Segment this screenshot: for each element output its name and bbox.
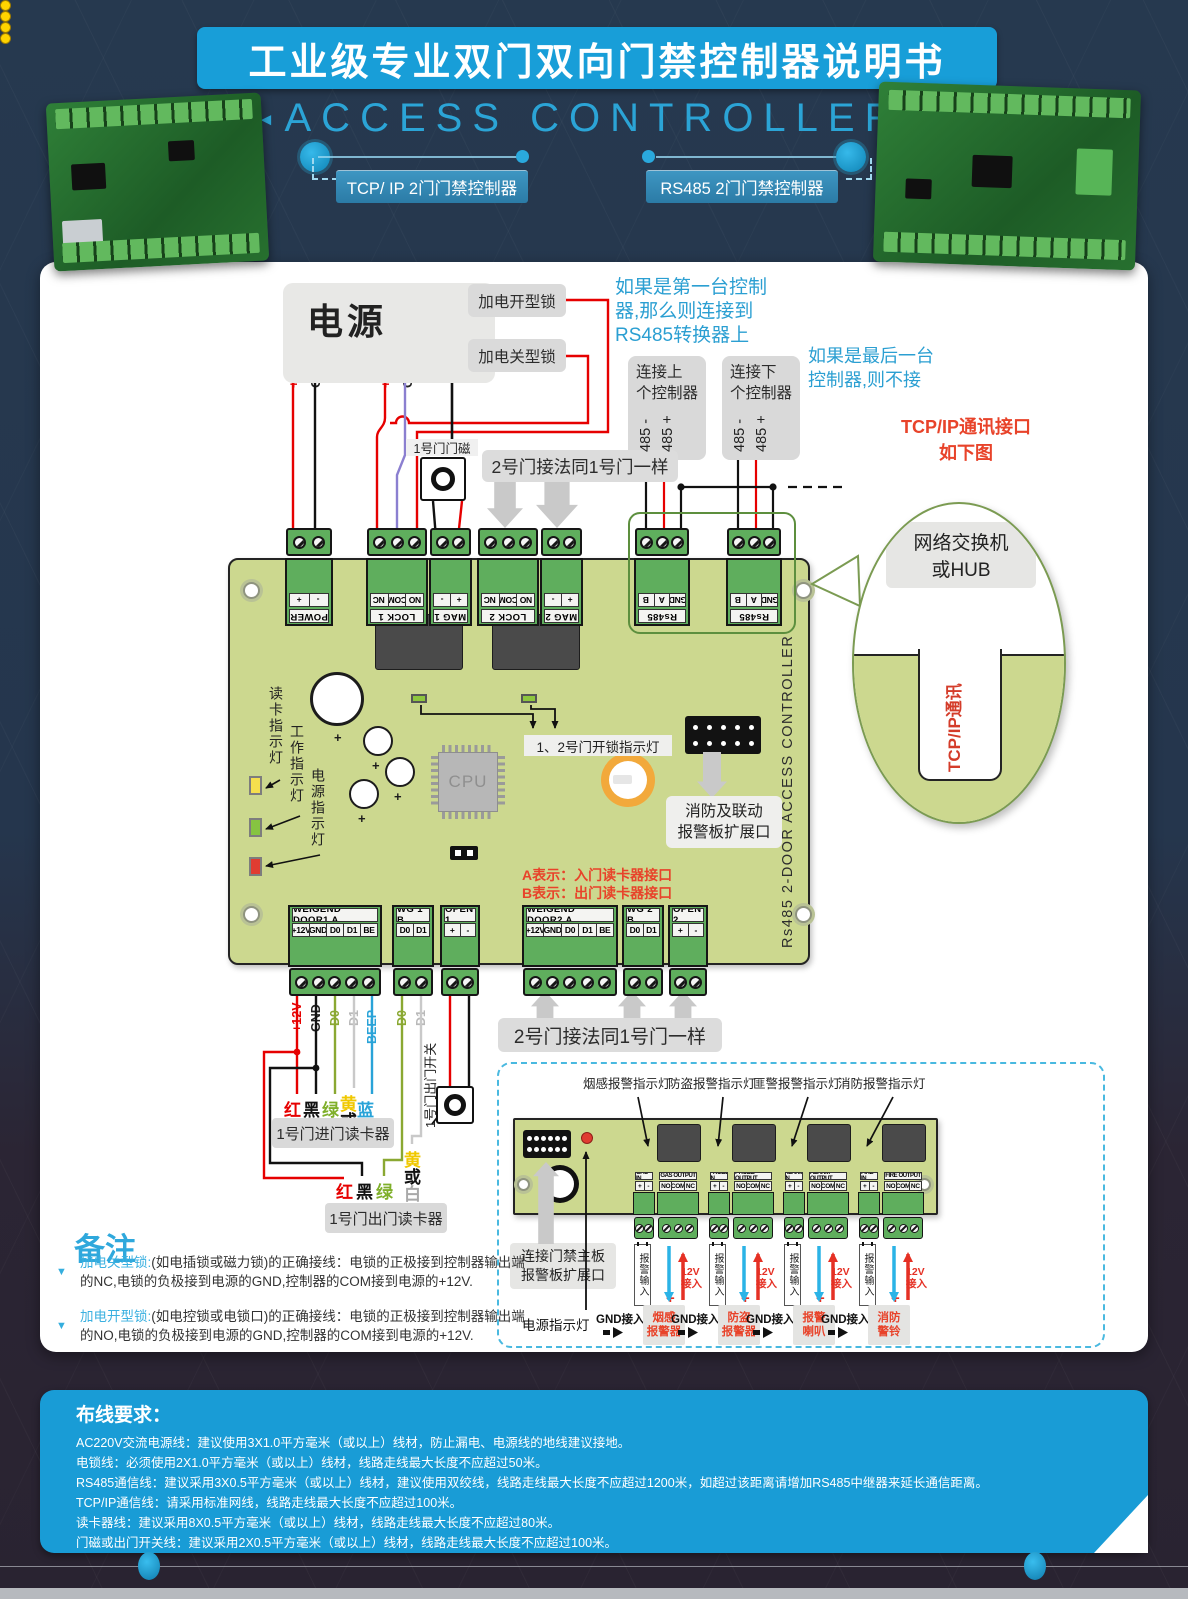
mount-hole-icon	[243, 906, 260, 923]
wire-label-beep: BEEP	[365, 1010, 379, 1044]
screw-icon	[760, 1224, 769, 1233]
wiring-req-title: 布线要求：	[76, 1400, 171, 1427]
screw-icon	[408, 536, 421, 549]
wiring-req-line: RS485通信线：建议采用3X0.5平方毫米（或以上）线材，建议使用双绞线，线路…	[76, 1472, 988, 1491]
link-up-pin-485minus: 485 -	[638, 419, 654, 452]
terminal-bottom-weigend-door2-a: WEIGEND DOOR2 A+12VGNDD0D1BE	[522, 905, 618, 995]
pcb-photo-left	[46, 92, 269, 271]
alarm-input-label: 报警输入	[784, 1244, 801, 1306]
corner-fold	[1094, 1495, 1148, 1553]
terminal-top-power-0: +-POWER	[285, 528, 333, 656]
decor-dash-right	[846, 158, 872, 180]
screw-icon	[794, 1224, 803, 1233]
bullet-triangle-icon: ▼	[56, 1266, 67, 1278]
wiring-req-line: TCP/IP通信线：请采用标准网线，线路走线最大长度不应超过100米。	[76, 1492, 462, 1511]
screw-icon	[461, 976, 474, 989]
unlock-led-2	[521, 694, 537, 703]
door2-same-note-bottom: 2号门接法同1号门一样	[498, 1018, 722, 1052]
alarm-pin-header	[523, 1130, 571, 1158]
led-working	[249, 818, 262, 837]
led-card-read	[249, 776, 262, 795]
alarm-input-label: 报警输入	[634, 1244, 651, 1306]
screw-icon	[685, 1224, 694, 1233]
v12-label: 12V接入	[831, 1266, 852, 1290]
plus-label: +	[666, 1293, 675, 1305]
alarm-terminal-probe-in: PROBE IN+-	[708, 1172, 730, 1242]
exit-button	[436, 1086, 474, 1124]
alarm-terminal-probe-output: PROBE OUTPUTNOCOMNC	[732, 1172, 774, 1242]
capacitor-icon	[349, 779, 379, 809]
footer-dot	[1024, 1552, 1046, 1580]
screw-icon	[656, 536, 669, 549]
alarm-powerled-label: 电源指示灯	[522, 1314, 590, 1334]
note-tcpip: TCP/IP通讯接口 如下图	[868, 414, 1064, 466]
alarm-terminal-alarm-output: ALARM OUTPUTNOCOMNC	[807, 1172, 849, 1242]
wiring-req-line: 读卡器线：建议采用8X0.5平方毫米（或以上）线材，线路走线最大长度不应超过80…	[76, 1512, 560, 1531]
capacitor-icon	[310, 672, 364, 726]
screw-icon	[563, 976, 576, 989]
screw-icon	[546, 976, 559, 989]
wire-label-d0: D0	[328, 1010, 342, 1026]
decor-smalldot-right	[642, 150, 655, 163]
capacitor-icon	[363, 726, 393, 756]
hub-label: 网络交换机或HUB	[886, 522, 1036, 588]
door2-same-note-top: 2号门接法同1号门一样	[482, 450, 678, 482]
screw-icon	[484, 536, 497, 549]
alarm-indicator-led	[0, 11, 11, 22]
buzzer-icon	[601, 753, 655, 807]
screw-icon	[345, 976, 358, 989]
gnd-label: GND接入	[671, 1311, 720, 1327]
screw-icon	[732, 536, 745, 549]
led-label-card-read: 读卡指示灯	[266, 686, 286, 766]
mount-hole-icon	[795, 906, 812, 923]
wiring-req-line: 门磁或出门开关线：建议采用2X0.5平方毫米（或以上）线材，线路走线最大长度不应…	[76, 1532, 617, 1551]
tag-tcpip-controller: TCP/ IP 2门门禁控制器	[336, 170, 528, 203]
alarm-relay	[657, 1124, 701, 1162]
alarm-terminal-gas-in: GAS IN+-	[633, 1172, 655, 1242]
terminal-bottom-wg-1-b: WG 1 BD0D1	[392, 905, 434, 995]
screw-icon	[710, 1224, 719, 1233]
screw-icon	[749, 1224, 758, 1233]
screw-icon	[645, 976, 658, 989]
indicator-label-burglar: 防盗报警指示灯	[668, 1073, 756, 1092]
screw-icon	[312, 536, 325, 549]
power-supply-box: 电源	[283, 283, 495, 383]
page: 工业级专业双门双向门禁控制器说明书 ◄ACCESS CONTROLLER► TC…	[0, 0, 1188, 1599]
terminal-top-rs485-6: BAGNDRs485	[726, 528, 782, 656]
indicator-label-fire: 消防报警指示灯	[838, 1073, 926, 1092]
screw-icon	[295, 976, 308, 989]
screw-icon	[529, 976, 542, 989]
screw-icon	[446, 976, 459, 989]
tag-rs485-controller: RS485 2门门禁控制器	[646, 170, 838, 203]
terminal-bottom-weigend-door1-a: WEIGEND DOOR1 A+12VGNDD0D1BE	[288, 905, 382, 995]
screw-icon	[674, 1224, 683, 1233]
screw-icon	[860, 1224, 869, 1233]
terminal-top-lock-2-3: NCCOMNOLOCK 2	[477, 528, 539, 656]
screw-icon	[563, 536, 576, 549]
terminal-bottom-open-2: OPEN 2+-	[668, 905, 708, 995]
wiring-requirements-panel: 布线要求： AC220V交流电源线：建议使用3X1.0平方毫米（或以上）线材，防…	[40, 1390, 1148, 1553]
screw-icon	[835, 1224, 844, 1233]
screw-icon	[581, 976, 594, 989]
footer-dot	[138, 1552, 160, 1580]
screw-icon	[415, 976, 428, 989]
screw-icon	[391, 536, 404, 549]
wire-label-12v: +12V	[290, 1002, 304, 1032]
fire-expansion-note: 消防及联动报警板扩展口	[666, 796, 782, 848]
alarm-terminal-fire-output: FIRE OUTPUTNOCOMNC	[882, 1172, 924, 1242]
alarm-terminal-gas-output: GAS OUTPUTNOCOMNC	[657, 1172, 699, 1242]
power-supply-label: 电源	[307, 293, 387, 345]
gnd-label: GND接入	[746, 1311, 795, 1327]
alarm-device-3: 消防警铃	[868, 1305, 910, 1345]
screw-icon	[869, 1224, 878, 1233]
page-title: 工业级专业双门双向门禁控制器说明书	[248, 31, 945, 86]
gnd-label: GND接入	[821, 1311, 870, 1327]
screw-icon	[824, 1224, 833, 1233]
alarm-input-label: 报警输入	[709, 1244, 726, 1306]
screw-icon	[812, 1224, 821, 1233]
alarm-input-label: 报警输入	[859, 1244, 876, 1306]
footer-line	[0, 1566, 1188, 1567]
plus-label: +	[891, 1293, 900, 1305]
screw-icon	[640, 536, 653, 549]
wire-label-d1: D1	[347, 1010, 361, 1026]
link-down-pin-485plus: 485 +	[754, 415, 770, 452]
terminal-top-mag-2-4: -+MAG 2	[540, 528, 583, 656]
indicator-label-robbery: 匪警报警指示灯	[753, 1073, 841, 1092]
screw-icon	[452, 536, 465, 549]
decor-dash-left	[312, 158, 338, 180]
wirecolor-red: 红	[336, 1178, 353, 1203]
terminal-bottom-wg-2-b: WG 2 BD0D1	[622, 905, 664, 995]
note-first-controller: 如果是第一台控制 器,那么则连接到 RS485转换器上	[615, 276, 767, 348]
alarm-indicator-led	[0, 22, 11, 33]
screw-icon	[328, 976, 341, 989]
alarm-buzzer-icon	[541, 1165, 579, 1203]
screw-icon	[719, 1224, 728, 1233]
screw-icon	[293, 536, 306, 549]
unlock-led-note: 1、2号门开锁指示灯	[524, 735, 672, 756]
alarm-indicator-led	[0, 0, 11, 11]
screw-icon	[674, 976, 687, 989]
plus-label: +	[741, 1293, 750, 1305]
screw-icon	[737, 1224, 746, 1233]
terminal-top-rs485-5: BAGNDRs485	[634, 528, 690, 656]
screw-icon	[785, 1224, 794, 1233]
gnd-label: GND接入	[596, 1311, 645, 1327]
screw-icon	[635, 1224, 644, 1233]
alarm-indicator-led	[0, 33, 11, 44]
door1-magnet-label: 1号门门磁	[406, 439, 478, 456]
screw-icon	[312, 976, 325, 989]
screw-icon	[671, 536, 684, 549]
wire-label-wg1b-d0: D0	[395, 1010, 409, 1026]
screw-icon	[887, 1224, 896, 1233]
led-label-working: 工作指示灯	[287, 724, 307, 804]
alarm-terminal-alarm-in: ALARM IN+-	[783, 1172, 805, 1242]
screw-icon	[436, 536, 449, 549]
screw-icon	[547, 536, 560, 549]
plus-label: +	[816, 1293, 825, 1305]
screw-icon	[899, 1224, 908, 1233]
alarm-power-led	[581, 1132, 593, 1144]
led-power	[249, 857, 262, 876]
board-side-label: Rs485 2-DOOR ACCESS CONTROLLER	[780, 635, 796, 948]
hub-bubble: 网络交换机或HUB	[852, 502, 1066, 824]
v12-label: 12V接入	[681, 1266, 702, 1290]
screw-icon	[763, 536, 776, 549]
magnet-ring-icon	[431, 467, 455, 491]
alarm-terminal-fire-in: FIRE IN+-	[858, 1172, 880, 1242]
reader1-box: 1号门进门读卡器	[272, 1118, 394, 1148]
tcpip-port-label: TCP/IP通讯	[940, 683, 965, 772]
screw-icon	[502, 536, 515, 549]
screw-icon	[910, 1224, 919, 1233]
screw-icon	[689, 976, 702, 989]
terminal-bottom-open-1: OPEN 1+-	[440, 905, 480, 995]
wirecolor-black: 黑	[356, 1178, 373, 1203]
lock-no-type-box: 加电开型锁	[468, 284, 566, 317]
unlock-led-1	[411, 694, 427, 703]
capacitor-icon	[385, 757, 415, 787]
pcb-photo-right	[873, 81, 1141, 270]
bullet-triangle-icon: ▼	[56, 1320, 67, 1332]
mount-hole-icon	[243, 582, 260, 599]
wiring-req-line: AC220V交流电源线：建议使用3X1.0平方毫米（或以上）线材，防止漏电、电源…	[76, 1432, 630, 1451]
wiring-req-line: 电锁线：必须使用2X1.0平方毫米（或以上）线材，线路走线最大长度不应超过50米…	[76, 1452, 548, 1471]
button-ring-icon	[444, 1094, 466, 1116]
decor-line-right	[656, 156, 838, 158]
terminal-top-mag-1-2: -+MAG 1	[429, 528, 472, 656]
screw-icon	[373, 536, 386, 549]
screw-icon	[519, 536, 532, 549]
decor-smalldot-left	[516, 150, 529, 163]
screw-icon	[362, 976, 375, 989]
reader-ab-note: A表示：入门读卡器接口 B表示：出门读卡器接口	[522, 866, 672, 902]
screw-icon	[644, 1224, 653, 1233]
screw-icon	[748, 536, 761, 549]
footer-strip	[0, 1588, 1188, 1599]
link-up-pin-485plus: 485 +	[660, 415, 676, 452]
wire-label-gnd: GND	[309, 1004, 323, 1032]
alarm-relay	[882, 1124, 926, 1162]
lock-nc-type-box: 加电关型锁	[468, 339, 566, 372]
jumper-icon	[450, 846, 478, 860]
alarm-relay	[807, 1124, 851, 1162]
link-down-pin-485minus: 485 -	[732, 419, 748, 452]
wire-label-wg1b-d1: D1	[414, 1010, 428, 1026]
door1-magnet-sensor	[420, 457, 466, 501]
led-label-power: 电源指示灯	[308, 768, 328, 848]
note-item-2: 加电开型锁:(如电控锁或电锁口)的正确接线：电锁的正极接到控制器输出端的NO,电…	[80, 1308, 532, 1345]
wirecolor-white: 白	[404, 1180, 421, 1205]
indicator-label-smoke: 烟感报警指示灯	[583, 1073, 671, 1092]
v12-label: 12V接入	[756, 1266, 777, 1290]
wirecolor-green: 绿	[376, 1178, 393, 1203]
terminal-top-lock-1-1: NCCOMNOLOCK 1	[366, 528, 428, 656]
cpu-chip: CPU	[438, 752, 498, 812]
alarm-relay	[732, 1124, 776, 1162]
reader2-box: 1号门出门读卡器	[325, 1203, 447, 1233]
expansion-pin-header	[685, 716, 761, 754]
screw-icon	[598, 976, 611, 989]
note-last-controller: 如果是最后一台 控制器,则不接	[808, 344, 934, 392]
note-item-1: 加电关型锁:(如电插锁或磁力锁)的正确接线：电锁的正极接到控制器输出端的NC,电…	[80, 1254, 532, 1291]
decor-line-left	[318, 156, 520, 158]
screw-icon	[628, 976, 641, 989]
screw-icon	[398, 976, 411, 989]
title-banner: 工业级专业双门双向门禁控制器说明书	[197, 27, 997, 89]
v12-label: 12V接入	[906, 1266, 927, 1290]
screw-icon	[662, 1224, 671, 1233]
mount-hole-icon	[517, 1178, 530, 1191]
